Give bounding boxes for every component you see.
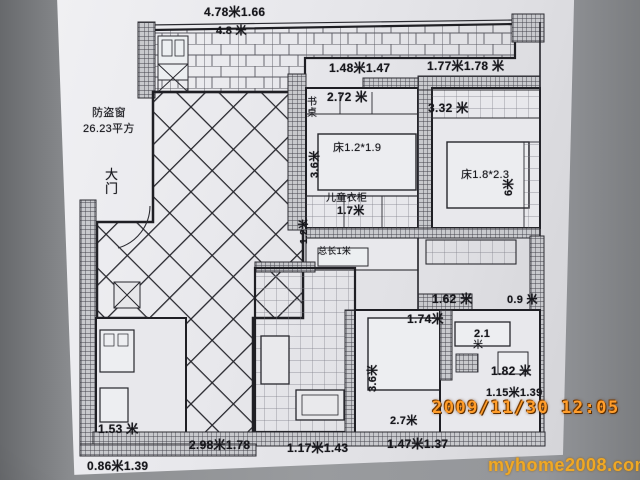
room-master-bedroom [418, 76, 540, 228]
room-bottom-right [440, 310, 540, 438]
room-bathroom [255, 262, 355, 432]
camera-datestamp: 2009/11/30 12:05 [432, 398, 620, 418]
site-watermark: myhome2008.com [488, 455, 640, 476]
photo-background: 4.78米1.664.8 米1.48米1.471.77米1.78 米2.72 米… [0, 0, 640, 480]
room-bottom-left [96, 318, 186, 434]
room-child-bedroom [288, 74, 421, 230]
room-dining [345, 310, 440, 438]
